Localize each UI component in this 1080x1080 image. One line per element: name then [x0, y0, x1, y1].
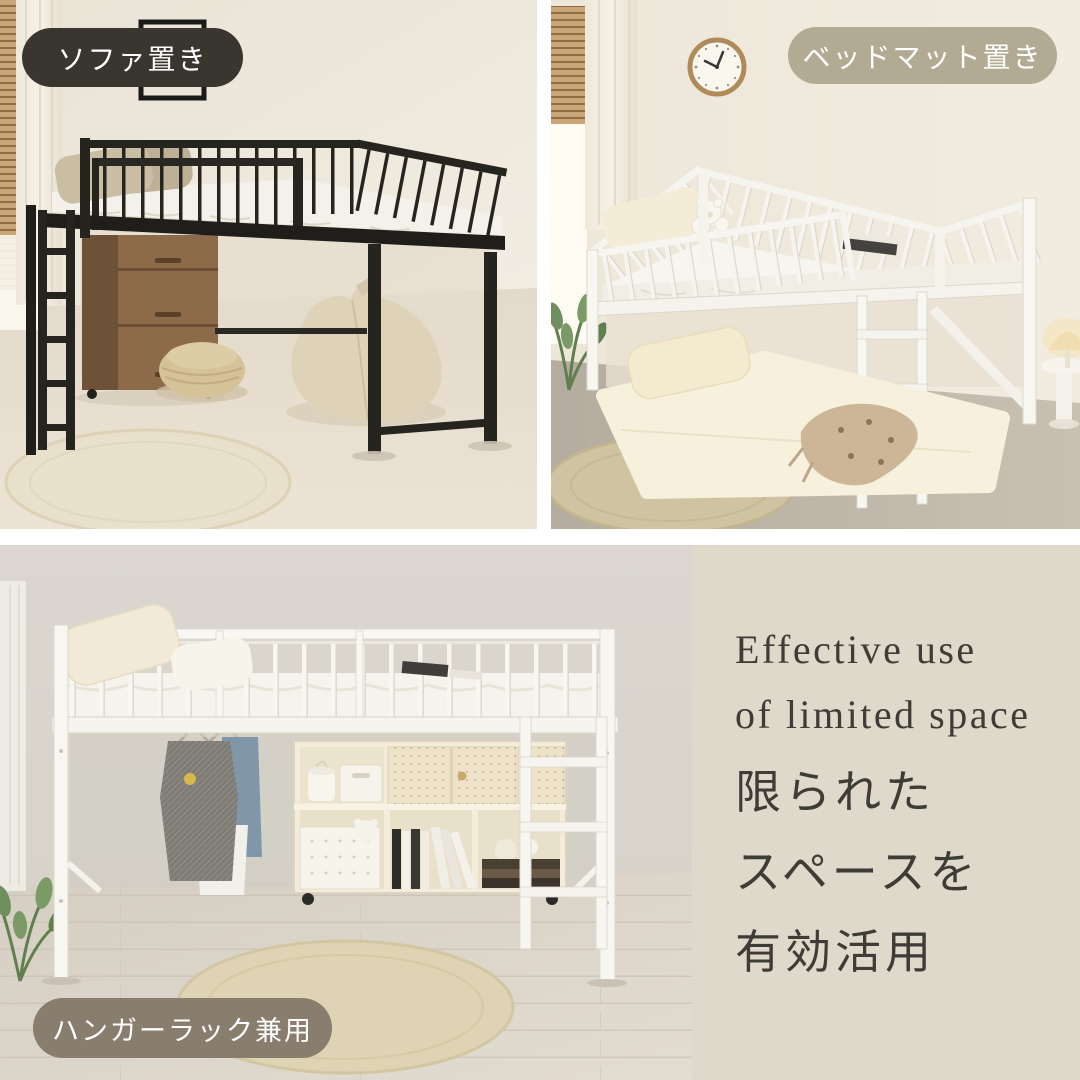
- storage-basket: [340, 765, 382, 802]
- wall-clock: [690, 40, 744, 94]
- curtain: [0, 581, 26, 891]
- badge-sofa-space: ソファ置き: [22, 28, 243, 87]
- badge-hanger-label: ハンガーラック兼用: [52, 1009, 313, 1048]
- photo-white-loft-bed-hanger-rack: ハンガーラック兼用: [0, 545, 692, 1080]
- heading-jp-line1: 限られた: [735, 753, 979, 833]
- pegboard-doors: [388, 747, 564, 804]
- badge-bedmat-space: ベッドマット置き: [788, 27, 1057, 84]
- photo-white-loft-bed-mattress: ベッドマット置き: [551, 0, 1080, 529]
- text-panel: Effective use of limited space 限られた スペース…: [692, 545, 1080, 1080]
- heading-en-line1: Effective use: [735, 617, 1030, 682]
- badge-bedmat-label: ベッドマット置き: [802, 36, 1042, 76]
- product-collage: ソファ置き: [0, 0, 1080, 1080]
- heading-en-line2: of limited space: [735, 682, 1030, 747]
- heading-jp-line2: スペースを: [735, 833, 979, 913]
- badge-sofa-label: ソファ置き: [57, 38, 207, 78]
- badge-hanger-rack: ハンガーラック兼用: [33, 998, 332, 1058]
- striped-sweater: [160, 741, 238, 881]
- straw-pouf: [156, 342, 248, 402]
- perforated-box: [300, 819, 380, 889]
- photo-black-loft-bed: ソファ置き: [0, 0, 537, 529]
- heading-jp-line3: 有効活用: [735, 913, 979, 993]
- round-rug: [6, 430, 290, 529]
- heading-japanese: 限られた スペースを 有効活用: [735, 753, 979, 993]
- heading-english: Effective use of limited space: [735, 617, 1030, 747]
